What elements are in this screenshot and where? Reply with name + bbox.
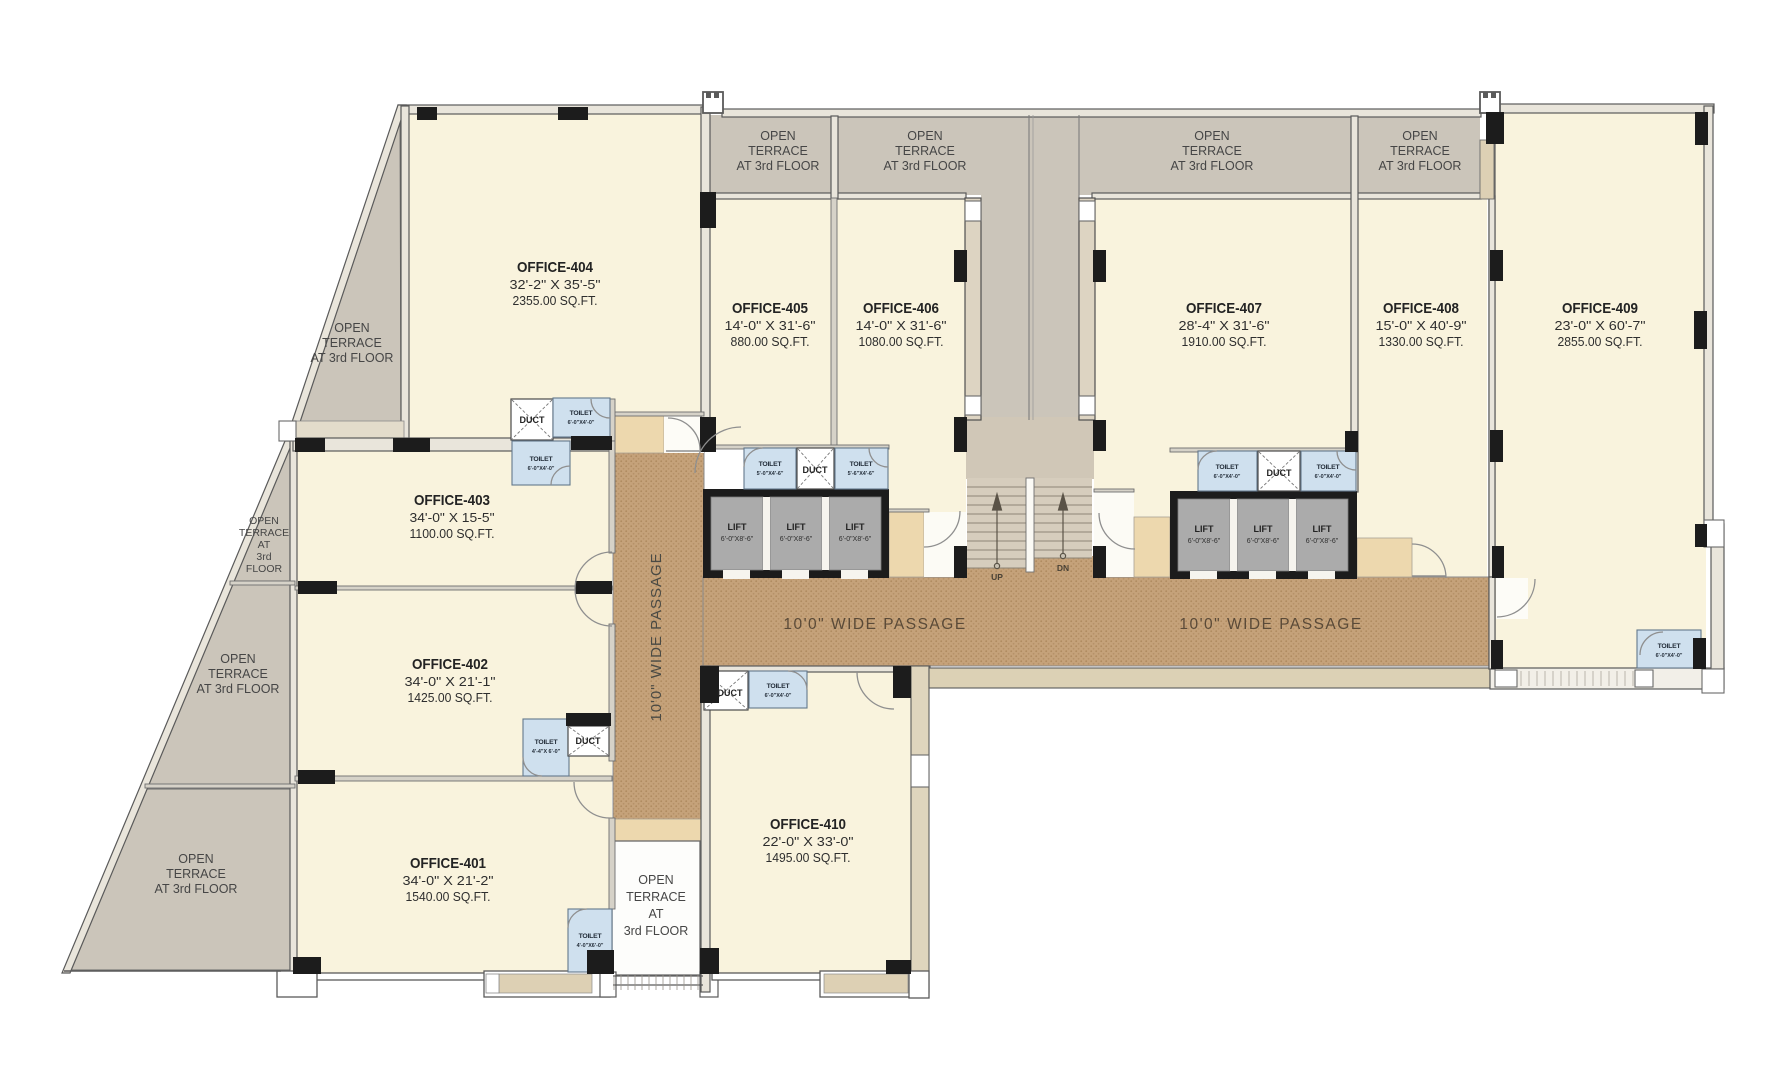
svg-text:4'-0"X6'-0": 4'-0"X6'-0" <box>577 943 604 949</box>
svg-text:4'-4"X 6'-0": 4'-4"X 6'-0" <box>532 749 561 755</box>
svg-text:LIFT: LIFT <box>1254 524 1273 534</box>
svg-text:6'-0"X8'-6": 6'-0"X8'-6" <box>1188 538 1221 545</box>
svg-text:TERRACE: TERRACE <box>895 144 955 158</box>
svg-text:OPEN: OPEN <box>1402 129 1437 143</box>
svg-text:TERRACE: TERRACE <box>322 336 382 350</box>
svg-text:LIFT: LIFT <box>728 522 747 532</box>
svg-text:10'0" WIDE PASSAGE: 10'0" WIDE PASSAGE <box>648 552 665 721</box>
svg-text:34'-0" X 21'-2": 34'-0" X 21'-2" <box>403 873 494 888</box>
svg-text:23'-0" X 60'-7": 23'-0" X 60'-7" <box>1555 318 1646 333</box>
svg-text:3rd: 3rd <box>256 551 271 563</box>
svg-text:AT 3rd FLOOR: AT 3rd FLOOR <box>1171 159 1254 173</box>
svg-text:6'-0"X4'-0": 6'-0"X4'-0" <box>765 693 792 699</box>
svg-text:OFFICE-402: OFFICE-402 <box>412 657 488 673</box>
svg-text:DUCT: DUCT <box>520 415 545 425</box>
svg-text:AT 3rd FLOOR: AT 3rd FLOOR <box>155 882 238 896</box>
svg-text:OFFICE-403: OFFICE-403 <box>414 493 490 509</box>
svg-text:UP: UP <box>991 572 1003 582</box>
svg-text:TERRACE: TERRACE <box>748 144 808 158</box>
svg-text:TOILET: TOILET <box>759 461 783 468</box>
svg-text:OFFICE-409: OFFICE-409 <box>1562 301 1638 317</box>
svg-text:OPEN: OPEN <box>638 873 673 887</box>
svg-text:LIFT: LIFT <box>1195 524 1214 534</box>
svg-text:DN: DN <box>1057 563 1069 573</box>
svg-text:TOILET: TOILET <box>570 410 594 417</box>
svg-text:22'-0" X 33'-0": 22'-0" X 33'-0" <box>763 834 854 849</box>
svg-text:1910.00 SQ.FT.: 1910.00 SQ.FT. <box>1182 334 1267 349</box>
svg-text:6'-0"X8'-6": 6'-0"X8'-6" <box>721 536 754 543</box>
svg-text:TOILET: TOILET <box>1216 464 1240 471</box>
svg-text:2855.00 SQ.FT.: 2855.00 SQ.FT. <box>1558 334 1643 349</box>
svg-text:2355.00 SQ.FT.: 2355.00 SQ.FT. <box>513 293 598 308</box>
svg-text:AT: AT <box>648 907 663 921</box>
svg-text:TERRACE: TERRACE <box>1390 144 1450 158</box>
svg-text:LIFT: LIFT <box>1313 524 1332 534</box>
svg-text:AT 3rd FLOOR: AT 3rd FLOOR <box>737 159 820 173</box>
svg-text:AT 3rd FLOOR: AT 3rd FLOOR <box>197 682 280 696</box>
svg-text:1425.00 SQ.FT.: 1425.00 SQ.FT. <box>408 690 493 705</box>
svg-text:1540.00 SQ.FT.: 1540.00 SQ.FT. <box>406 889 491 904</box>
svg-text:6'-0"X8'-6": 6'-0"X8'-6" <box>780 536 813 543</box>
svg-text:DUCT: DUCT <box>803 465 828 475</box>
svg-text:TOILET: TOILET <box>1658 643 1682 650</box>
svg-text:DUCT: DUCT <box>1267 468 1292 478</box>
svg-text:OPEN: OPEN <box>907 129 942 143</box>
svg-text:1100.00 SQ.FT.: 1100.00 SQ.FT. <box>410 526 495 541</box>
svg-text:1080.00 SQ.FT.: 1080.00 SQ.FT. <box>859 334 944 349</box>
svg-text:10'0" WIDE PASSAGE: 10'0" WIDE PASSAGE <box>1179 616 1362 633</box>
svg-text:LIFT: LIFT <box>846 522 865 532</box>
svg-text:OPEN: OPEN <box>220 652 255 666</box>
svg-text:14'-0" X 31'-6": 14'-0" X 31'-6" <box>856 318 947 333</box>
svg-text:6'-0"X4'-0": 6'-0"X4'-0" <box>1214 474 1241 480</box>
svg-text:10'0" WIDE PASSAGE: 10'0" WIDE PASSAGE <box>783 616 966 633</box>
svg-text:14'-0" X 31'-6": 14'-0" X 31'-6" <box>725 318 816 333</box>
svg-text:OPEN: OPEN <box>334 321 369 335</box>
svg-text:880.00 SQ.FT.: 880.00 SQ.FT. <box>731 334 810 349</box>
svg-text:OFFICE-410: OFFICE-410 <box>770 817 846 833</box>
svg-text:5'-6"X4'-6": 5'-6"X4'-6" <box>848 471 875 477</box>
svg-text:TERRACE: TERRACE <box>239 527 289 539</box>
svg-text:FLOOR: FLOOR <box>246 563 283 575</box>
svg-text:OFFICE-406: OFFICE-406 <box>863 301 939 317</box>
svg-text:OPEN: OPEN <box>178 852 213 866</box>
svg-text:6'-0"X8'-6": 6'-0"X8'-6" <box>1306 538 1339 545</box>
svg-text:DUCT: DUCT <box>718 688 743 698</box>
svg-text:TOILET: TOILET <box>535 739 559 746</box>
svg-text:OFFICE-401: OFFICE-401 <box>410 856 486 872</box>
svg-text:TERRACE: TERRACE <box>208 667 268 681</box>
svg-text:DUCT: DUCT <box>576 736 601 746</box>
svg-text:28'-4" X 31'-6": 28'-4" X 31'-6" <box>1179 318 1270 333</box>
svg-text:5'-0"X4'-6": 5'-0"X4'-6" <box>757 471 784 477</box>
svg-text:3rd FLOOR: 3rd FLOOR <box>624 924 689 938</box>
svg-text:OFFICE-404: OFFICE-404 <box>517 260 594 276</box>
svg-text:1495.00 SQ.FT.: 1495.00 SQ.FT. <box>766 850 851 865</box>
svg-text:OPEN: OPEN <box>1194 129 1229 143</box>
svg-text:OFFICE-408: OFFICE-408 <box>1383 301 1459 317</box>
svg-text:6'-0"X4'-0": 6'-0"X4'-0" <box>1656 653 1683 659</box>
svg-text:LIFT: LIFT <box>787 522 806 532</box>
svg-text:AT 3rd FLOOR: AT 3rd FLOOR <box>884 159 967 173</box>
svg-text:AT 3rd FLOOR: AT 3rd FLOOR <box>1379 159 1462 173</box>
svg-text:6'-0"X8'-6": 6'-0"X8'-6" <box>839 536 872 543</box>
svg-text:TOILET: TOILET <box>850 461 874 468</box>
svg-text:OPEN: OPEN <box>249 515 279 527</box>
svg-text:AT 3rd FLOOR: AT 3rd FLOOR <box>311 351 394 365</box>
svg-text:TOILET: TOILET <box>530 456 554 463</box>
svg-text:TERRACE: TERRACE <box>1182 144 1242 158</box>
svg-text:1330.00 SQ.FT.: 1330.00 SQ.FT. <box>1379 334 1464 349</box>
svg-text:32'-2" X 35'-5": 32'-2" X 35'-5" <box>510 277 601 292</box>
svg-text:34'-0" X 21'-1": 34'-0" X 21'-1" <box>405 674 496 689</box>
svg-text:OFFICE-407: OFFICE-407 <box>1186 301 1262 317</box>
svg-text:TERRACE: TERRACE <box>626 890 686 904</box>
svg-text:15'-0" X 40'-9": 15'-0" X 40'-9" <box>1376 318 1467 333</box>
svg-text:34'-0" X 15-5": 34'-0" X 15-5" <box>410 510 495 525</box>
svg-text:TERRACE: TERRACE <box>166 867 226 881</box>
svg-text:6'-0"X4'-0": 6'-0"X4'-0" <box>528 466 555 472</box>
svg-text:TOILET: TOILET <box>1317 464 1341 471</box>
svg-text:6'-0"X8'-6": 6'-0"X8'-6" <box>1247 538 1280 545</box>
svg-text:6'-0"X4'-0": 6'-0"X4'-0" <box>1315 474 1342 480</box>
svg-text:OPEN: OPEN <box>760 129 795 143</box>
svg-text:OFFICE-405: OFFICE-405 <box>732 301 808 317</box>
svg-text:AT: AT <box>258 539 271 551</box>
svg-text:TOILET: TOILET <box>579 933 603 940</box>
svg-text:TOILET: TOILET <box>767 683 791 690</box>
svg-text:6'-0"X4'-0": 6'-0"X4'-0" <box>568 420 595 426</box>
